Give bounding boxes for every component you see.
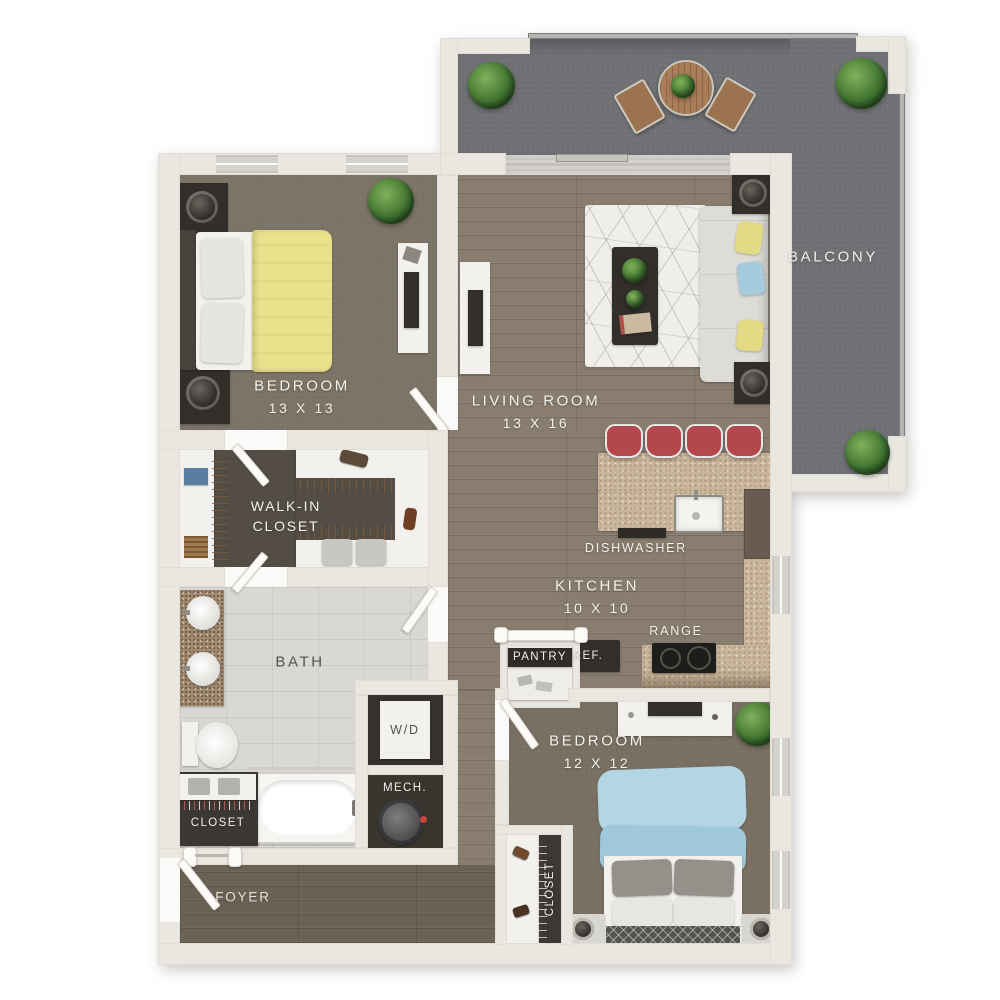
walk-in-closet-label: WALK-IN <box>251 498 321 514</box>
kitchen-sink-drain <box>692 512 700 520</box>
kitchen-faucet <box>694 490 698 500</box>
kitchen-bar-counter <box>598 453 772 491</box>
bed-pillow <box>612 898 672 926</box>
balcony-label: BALCONY <box>788 249 878 266</box>
range-label: RANGE <box>649 624 702 638</box>
lamp <box>750 918 772 940</box>
sofa-pillow <box>734 220 764 255</box>
plant <box>845 430 890 475</box>
burner <box>687 646 711 670</box>
balcony-wall-corner <box>888 36 906 94</box>
balcony-wall-corner <box>888 436 906 492</box>
wall-bedroom2-closet <box>561 825 573 945</box>
faucet <box>182 610 190 615</box>
bedroom2-closet-label: CLOSET <box>544 862 556 916</box>
kitchen-cabinet-dark <box>744 489 772 559</box>
plant <box>836 58 887 109</box>
wall-closet-right <box>428 430 448 587</box>
sink <box>186 652 220 686</box>
decor <box>628 712 634 718</box>
sliding-door <box>556 154 628 162</box>
shower-curtain-line <box>248 767 372 770</box>
window <box>216 155 278 173</box>
toilet-bowl <box>196 722 238 768</box>
washer-dryer-label: W/D <box>390 723 420 737</box>
lamp <box>740 369 768 397</box>
wall-bedroom1-closet <box>287 430 448 450</box>
bar-stool <box>685 424 723 458</box>
tv <box>648 700 702 716</box>
wall-bedroom1-closet <box>158 430 225 450</box>
window <box>346 155 408 173</box>
wall-laundry-divider <box>368 765 443 775</box>
bedroom1-label: BEDROOM <box>254 378 350 395</box>
plant <box>622 258 647 283</box>
kitchen-dims: 10 X 10 <box>564 600 630 616</box>
sofa-pillow <box>736 261 766 297</box>
foyer-label: FOYER <box>215 890 271 905</box>
wall-bedroom1-living <box>437 175 458 377</box>
wall-bottom <box>158 943 792 965</box>
plant <box>368 178 414 224</box>
faucet <box>182 666 190 671</box>
window <box>772 738 790 796</box>
plant <box>626 290 644 308</box>
wall-laundry <box>355 680 458 695</box>
bar-stool <box>645 424 683 458</box>
sofa-pillow <box>736 319 765 352</box>
ottoman <box>356 539 386 565</box>
window <box>772 556 790 614</box>
bath-label: BATH <box>275 654 324 671</box>
bath-closet-label: CLOSET <box>191 817 245 829</box>
folded-clothes <box>184 468 208 485</box>
hanging-clothes <box>184 801 250 810</box>
closet-door-post <box>228 847 242 867</box>
wall-top-bedroom1 <box>158 153 460 175</box>
wall-laundry <box>443 695 458 848</box>
bed-pillow <box>200 302 244 363</box>
bed-pillow <box>673 859 734 897</box>
bedroom2-dims: 12 X 12 <box>564 755 630 771</box>
books <box>619 312 652 334</box>
storage-bin <box>188 778 210 795</box>
kitchen-label: KITCHEN <box>555 578 639 595</box>
storage-bin <box>218 778 240 795</box>
window <box>772 851 790 909</box>
plant <box>671 74 695 98</box>
door-hinge <box>574 627 588 643</box>
pantry-label: PANTRY <box>513 651 567 663</box>
wall-balcony-south-left <box>440 153 506 175</box>
wall-closet-bath <box>287 567 448 587</box>
tv <box>404 272 419 328</box>
bed-runner <box>606 926 740 943</box>
basket <box>184 536 208 558</box>
wall-bedroom2-left <box>495 760 509 825</box>
hanging-clothes <box>212 458 229 560</box>
walk-in-closet-label2: CLOSET <box>253 518 320 534</box>
wall-bedroom2-top <box>568 688 770 702</box>
lamp <box>186 191 218 223</box>
bed-pillow <box>611 859 672 897</box>
balcony-wall-corner <box>440 38 458 155</box>
decor <box>712 714 718 720</box>
dishwasher-label: DISHWASHER <box>585 541 687 555</box>
balcony-railing-top <box>528 33 858 39</box>
bed-pillow <box>674 898 734 926</box>
wall-closet-bath <box>158 567 225 587</box>
burner <box>660 648 681 669</box>
ottoman <box>322 539 352 565</box>
door-hinge <box>494 627 508 643</box>
bed-blanket <box>252 230 332 372</box>
valve <box>420 816 427 823</box>
floorplan-canvas: BEDROOM 13 X 13 LIVING ROOM 13 X 16 BALC… <box>0 0 1000 1000</box>
lamp <box>739 179 767 207</box>
hanging-clothes <box>300 478 392 493</box>
living-room-label: LIVING ROOM <box>472 393 601 410</box>
closet-door-track <box>195 854 228 857</box>
plant <box>468 62 515 109</box>
bar-stool <box>605 424 643 458</box>
entry-doorway <box>160 858 180 922</box>
wall-left <box>158 153 180 965</box>
living-room-dims: 13 X 16 <box>503 415 569 431</box>
bathtub-basin <box>258 780 358 836</box>
bed-headboard <box>180 230 196 370</box>
mech-label: MECH. <box>383 782 427 794</box>
wall-bedroom2-closet <box>495 825 507 945</box>
bed-pillow <box>200 237 244 298</box>
sink <box>186 596 220 630</box>
refrigerator-label: REF. <box>573 650 604 662</box>
balcony-railing-right <box>899 50 905 440</box>
bar-stool <box>725 424 763 458</box>
bedroom2-label: BEDROOM <box>549 733 645 750</box>
tv <box>468 290 483 346</box>
lamp <box>572 918 594 940</box>
pantry-door <box>498 630 584 641</box>
bedroom1-dims: 13 X 13 <box>269 400 335 416</box>
dishwasher-front <box>618 528 666 538</box>
lamp <box>186 376 220 410</box>
apartment-floorplan: BEDROOM 13 X 13 LIVING ROOM 13 X 16 BALC… <box>0 0 1000 1000</box>
wall-laundry <box>355 695 368 848</box>
water-heater <box>378 799 424 845</box>
